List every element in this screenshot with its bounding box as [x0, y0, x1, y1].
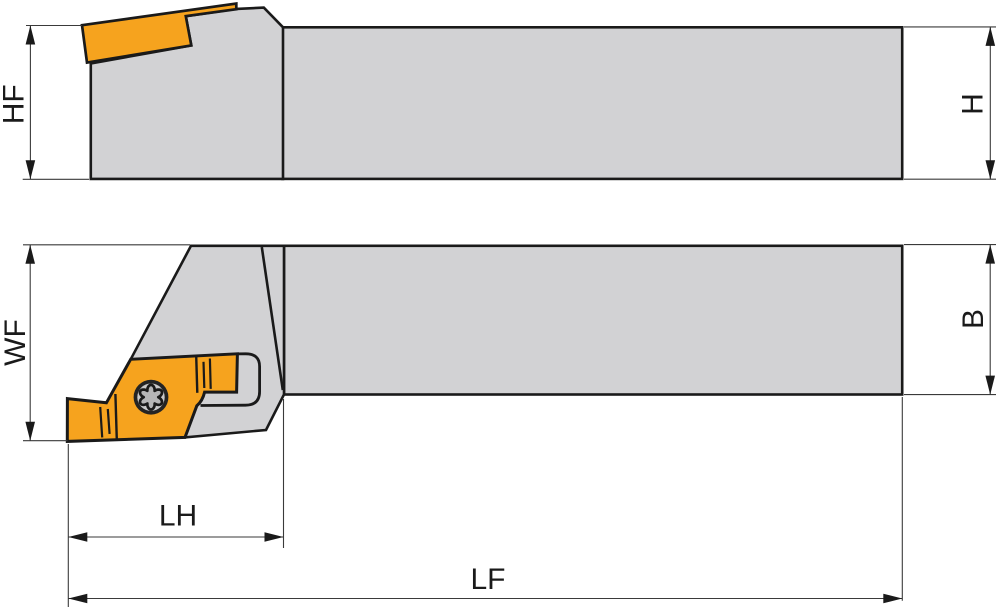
svg-text:B: B — [957, 309, 990, 329]
svg-text:H: H — [957, 93, 990, 115]
svg-text:LF: LF — [470, 563, 505, 596]
svg-text:LH: LH — [159, 500, 197, 533]
svg-text:WF: WF — [0, 319, 32, 366]
svg-text:HF: HF — [0, 84, 30, 124]
